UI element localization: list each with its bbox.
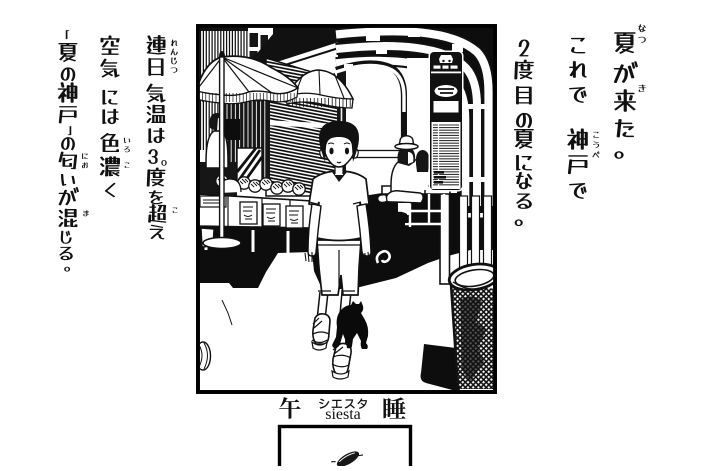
svg-text:siesta: siesta [325,406,361,423]
